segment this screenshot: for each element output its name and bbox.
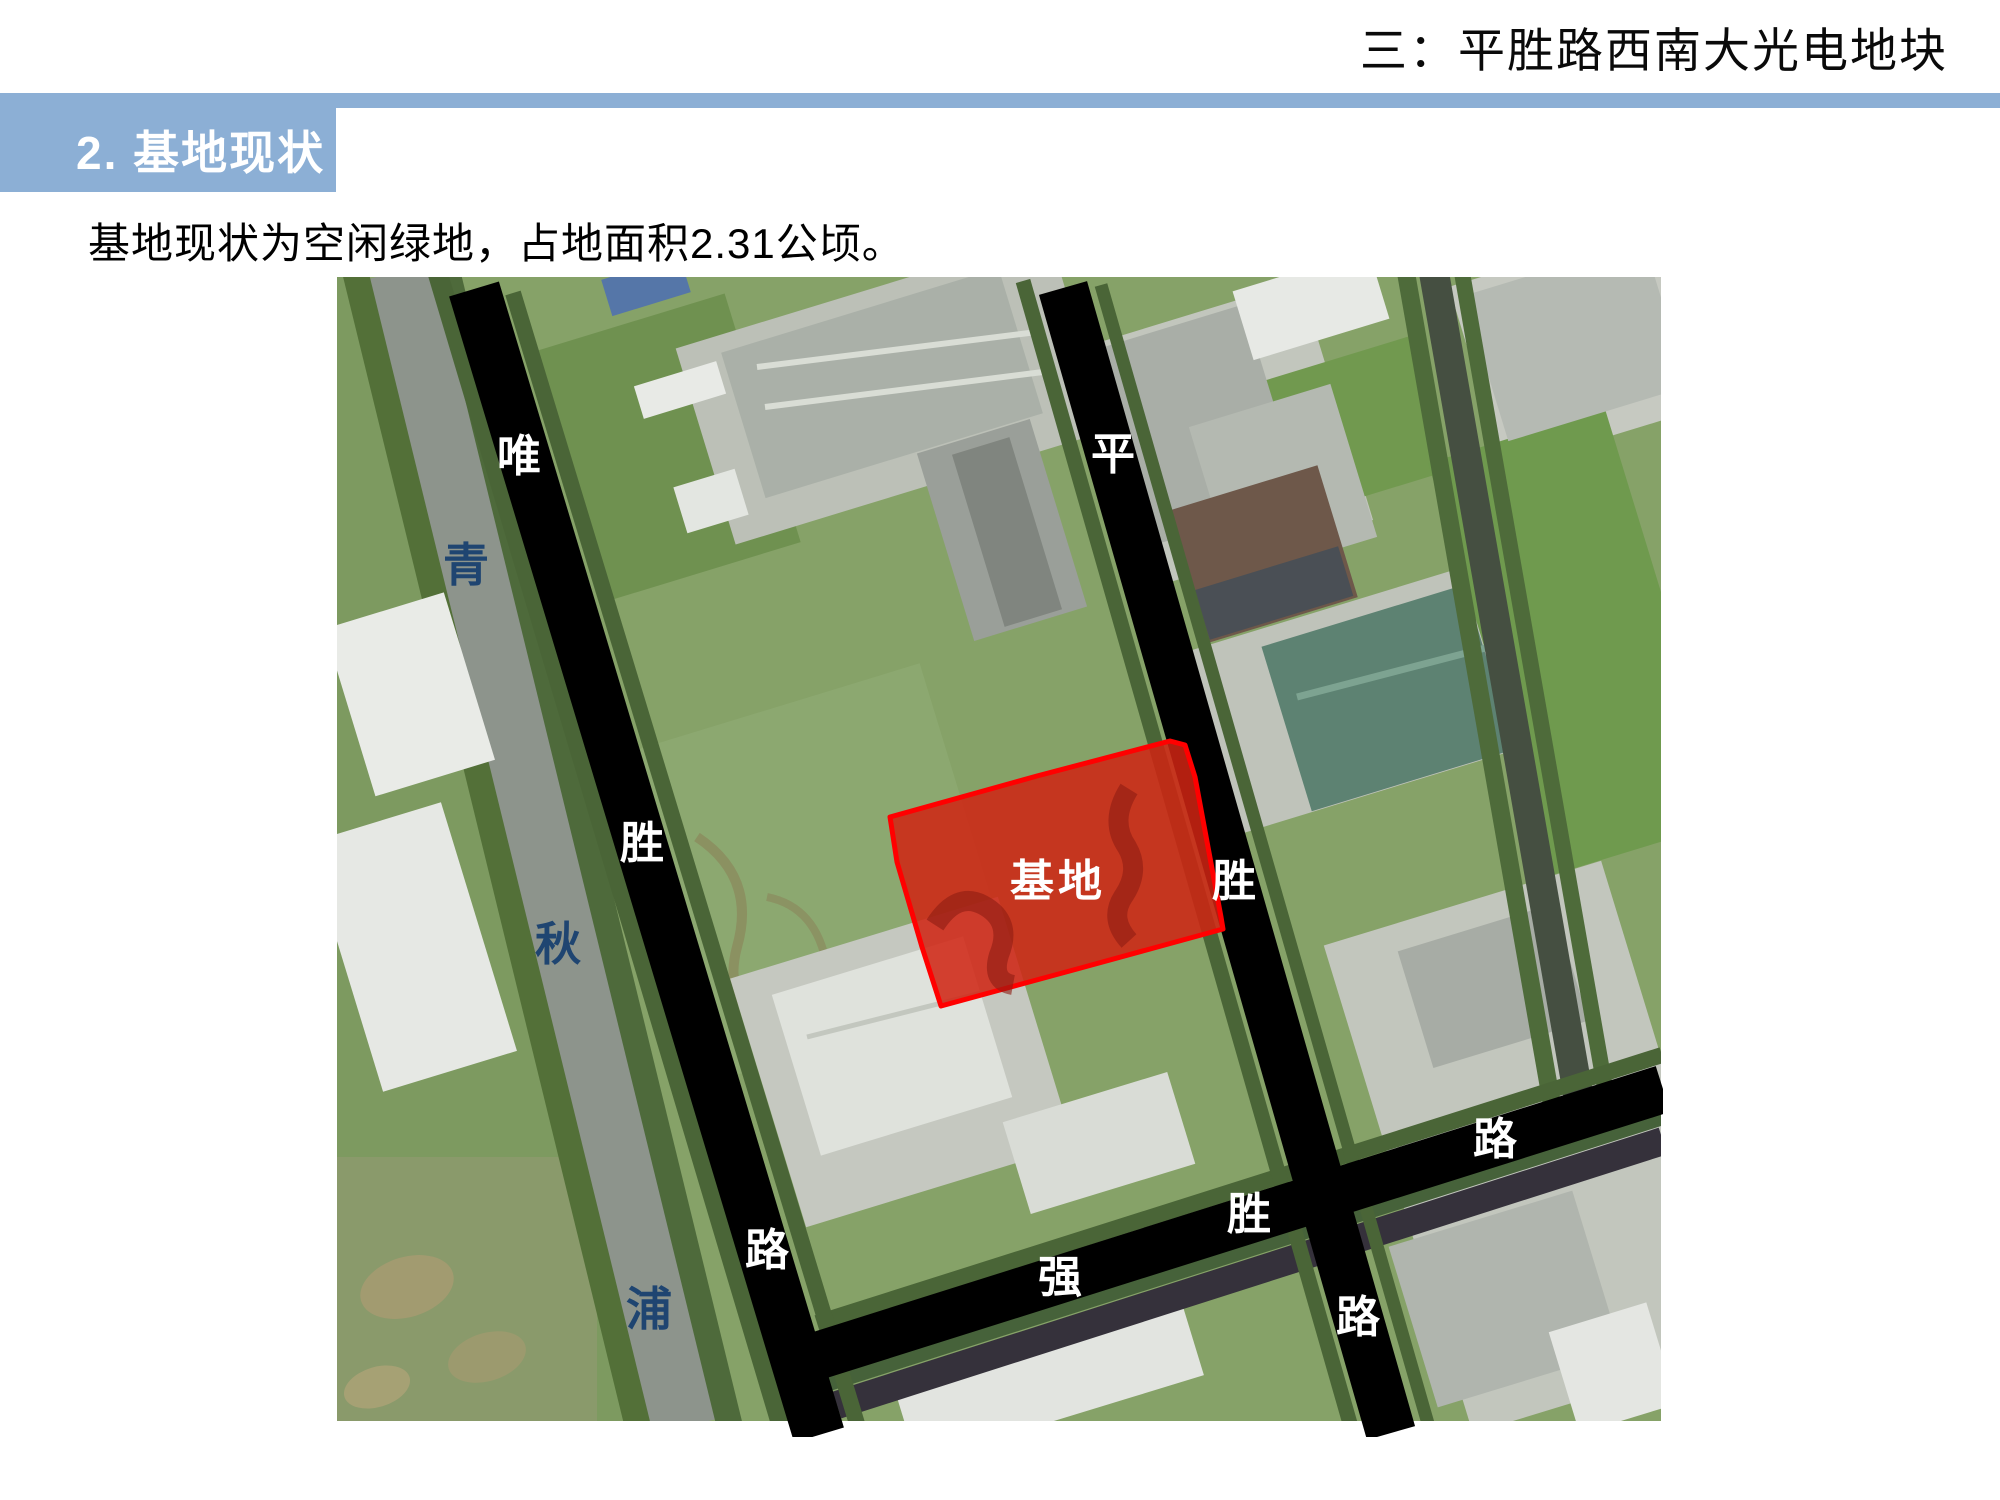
weisheng-road-label-1: 唯 (497, 420, 541, 484)
site-map: 青 秋 浦 唯 胜 路 平 胜 路 强 胜 路 基地 (337, 277, 1663, 1437)
section-title-banner: 2. 基地现状 (0, 108, 336, 192)
banner-strip (0, 93, 2000, 108)
pingsheng-road-label-2: 胜 (1212, 845, 1256, 909)
qiangsheng-road-label-2: 胜 (1227, 1178, 1271, 1242)
weisheng-road-label-2: 胜 (620, 807, 664, 871)
slide: { "header": { "breadcrumb": "三：平胜路西南大光电地… (0, 0, 2000, 1500)
river-label-qing: 青 (443, 529, 489, 595)
pingsheng-road-label-1: 平 (1091, 418, 1135, 482)
qiangsheng-road-label-3: 路 (1473, 1103, 1517, 1167)
pingsheng-road-label-3: 路 (1336, 1281, 1380, 1345)
qiangsheng-road-label-1: 强 (1038, 1241, 1082, 1305)
body-text: 基地现状为空闲绿地，占地面积2.31公顷。 (88, 210, 905, 271)
site-label: 基地 (1010, 845, 1106, 909)
river-label-qiu: 秋 (535, 908, 581, 974)
page-header-breadcrumb: 三：平胜路西南大光电地块 (1360, 12, 1948, 81)
river-label-pu: 浦 (626, 1273, 672, 1339)
section-title: 2. 基地现状 (0, 117, 325, 183)
weisheng-road-label-3: 路 (745, 1214, 789, 1278)
